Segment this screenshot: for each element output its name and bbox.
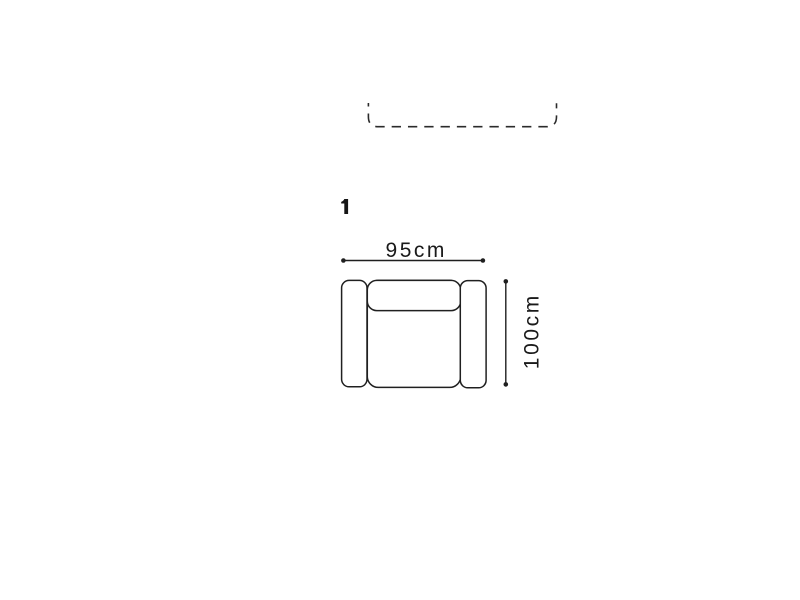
svg-text:100cm: 100cm bbox=[521, 293, 544, 369]
svg-text:95cm: 95cm bbox=[386, 239, 447, 262]
